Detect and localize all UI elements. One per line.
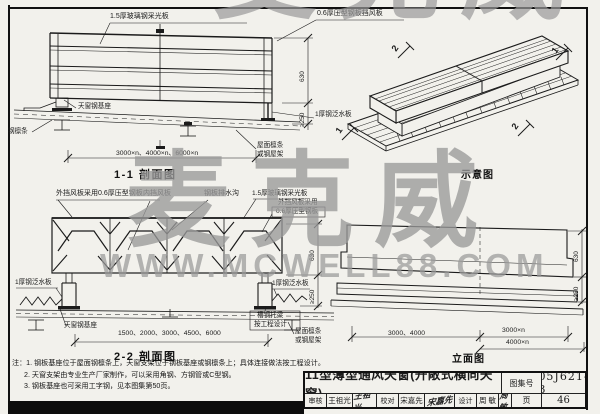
dim-span-11: 3000×n、4000×n、6000×n: [116, 147, 198, 157]
elevation-lines: 630 ≥250: [331, 225, 586, 353]
dim-span-22: 1500、2000、3000、4500、6000: [118, 327, 221, 337]
check-name: 宋嘉先: [399, 394, 425, 407]
section-1-1-lines: 630 ≥250: [14, 20, 404, 163]
label-joist-22-l1: 槽钢托梁: [257, 312, 283, 320]
label-roof-22-l2: 或钢屋架: [295, 337, 321, 345]
atlas-number-value: 05J621-3: [542, 373, 585, 393]
dim-span1-elev: 3000、4000: [388, 327, 425, 337]
label-inner-22: 内挡风板: [143, 190, 171, 198]
check-signature: 宋嘉先: [425, 394, 455, 407]
title-section-1-1: 1-1 剖面图: [114, 166, 176, 182]
review-name: 王祖光: [327, 394, 353, 407]
design-signature: 周敏: [499, 394, 512, 407]
dim-630-elev: 630: [573, 251, 580, 262]
section-mark-1-bottom: 1: [333, 125, 344, 135]
label-base-22: 天窗钢基座: [64, 322, 97, 330]
label-gutter-22: 钢板排水沟: [204, 190, 239, 198]
label-flash-left-22: 1厚钢泛水板: [15, 279, 52, 287]
label-base-11: 天窗钢基座: [78, 103, 111, 111]
label-roof-11-l1: 屋面檩条: [257, 142, 283, 150]
section-mark-2-bottom: 2: [509, 121, 520, 131]
page-label: 页: [512, 394, 542, 407]
dim-630-s11: 630: [299, 71, 306, 82]
title-block-row-1: 11型薄型通风天窗(开敞式横向天窗) 图集号 05J621-3: [305, 373, 585, 394]
section-mark-2-top: 2: [389, 43, 400, 53]
dim-250-s22: ≥250: [309, 289, 316, 304]
title-block: 11型薄型通风天窗(开敞式横向天窗) 图集号 05J621-3 审核 王祖光 王…: [303, 371, 587, 409]
sheet-title: 11型薄型通风天窗(开敞式横向天窗): [305, 373, 502, 393]
design-label: 设计: [455, 394, 477, 407]
review-signature: 王祖光: [353, 394, 377, 407]
label-outer2-22-l1: 外挡风板采用: [278, 199, 318, 207]
review-label: 审核: [305, 394, 327, 407]
dim-630-s22: 630: [309, 250, 316, 261]
label-outer-22: 外挡风板采用0.6厚压型钢板: [56, 190, 143, 198]
page-number: 46: [542, 394, 585, 407]
dim-250-elev: ≥250: [573, 286, 580, 301]
note-line-3: 3. 钢板基座也可采用工字钢，见本图集第50页。: [24, 381, 175, 391]
check-label: 校对: [377, 394, 399, 407]
drawing-linework: 630 ≥250: [0, 0, 600, 414]
label-joist-22-l2: 按工程设计: [254, 321, 287, 329]
isometric-view-lines: 2 1 1 2: [333, 36, 578, 151]
label-panel-11: 1.5厚玻璃钢采光板: [110, 13, 169, 21]
label-roof-22-l1: 屋面檩条: [295, 328, 321, 336]
label-roof-11-l2: 或钢屋架: [257, 151, 283, 159]
dim-span2-elev: 3000×n: [502, 327, 525, 334]
scan-black-band: [8, 401, 304, 414]
dim-span3-elev: 4000×n: [506, 339, 529, 346]
label-flash-right-22: 1厚钢泛水板: [272, 280, 309, 288]
title-block-row-2: 审核 王祖光 王祖光 校对 宋嘉先 宋嘉先 设计 周 敏 周敏 页 46: [305, 394, 585, 407]
title-elevation: 立面图: [452, 350, 485, 365]
note-line-1: 注：1. 钢板基座位于屋面钢檩条上，天窗支架位于钢板基座或钢檩条上；具体连接做法…: [12, 358, 325, 368]
design-name: 周 敏: [477, 394, 499, 407]
title-isometric: 示意图: [461, 166, 494, 181]
label-panel-22: 1.5厚玻璃钢采光板: [252, 190, 307, 198]
label-flashing-11: 1厚钢泛水板: [315, 111, 352, 119]
label-windboard-11: 0.6厚压型钢板挡风板: [317, 10, 383, 18]
dim-250-s11: ≥250: [299, 112, 306, 127]
note-line-2: 2. 天窗支架由专业生产厂家制作，可以采用角钢、方钢管或C型钢。: [24, 370, 236, 380]
label-purlin-11: 钢檩条: [8, 128, 28, 136]
atlas-number-label: 图集号: [502, 373, 542, 393]
atlas-sheet: 630 ≥250: [0, 0, 600, 414]
label-outer2-22-l2: 0.6厚压型钢板: [276, 208, 318, 216]
